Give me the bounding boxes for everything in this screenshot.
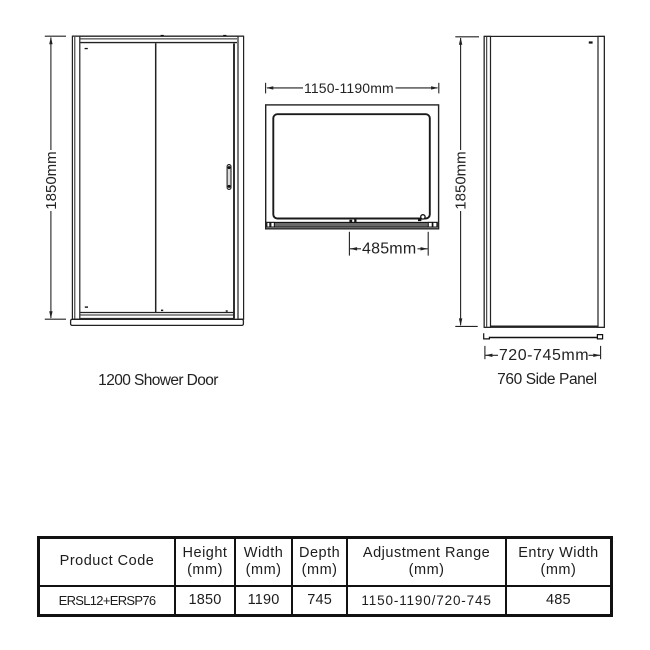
svg-text:1850mm: 1850mm bbox=[43, 151, 60, 209]
svg-text:485mm: 485mm bbox=[362, 240, 416, 257]
svg-text:1150-1190mm: 1150-1190mm bbox=[304, 80, 394, 96]
svg-text:760 Side Panel: 760 Side Panel bbox=[497, 371, 597, 388]
svg-text:1850mm: 1850mm bbox=[453, 151, 470, 209]
svg-text:1200 Shower Door: 1200 Shower Door bbox=[98, 372, 218, 389]
svg-text:720-745mm: 720-745mm bbox=[499, 347, 589, 364]
